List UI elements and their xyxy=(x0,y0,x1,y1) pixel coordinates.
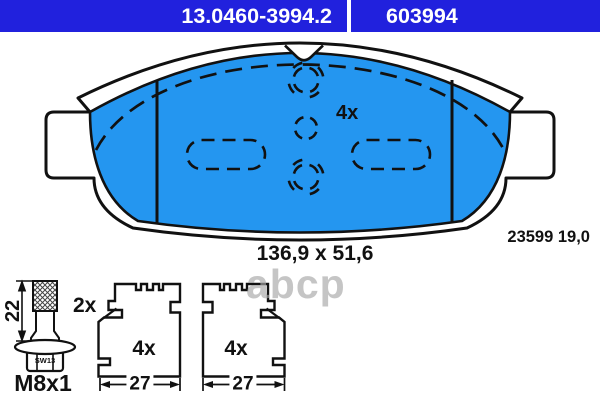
clip-right-dim-arrow-right xyxy=(275,381,285,388)
clip-left-dim-arrow-right xyxy=(170,381,180,388)
clip-left-width-label: 27 xyxy=(126,375,153,394)
pad-reference-label: 23599 19,0 xyxy=(507,229,590,246)
pad-qty-label: 4x xyxy=(336,103,358,123)
bolt-thread-section xyxy=(33,281,57,311)
bolt-thread-label: M8x1 xyxy=(14,372,72,395)
clip-left-qty-label: 4x xyxy=(132,338,155,359)
clip-left-dim-arrow-left xyxy=(100,381,110,388)
clip-right-qty-label: 4x xyxy=(224,338,247,359)
bolt-wrench-size-label: SW13 xyxy=(35,357,55,365)
clip-right-dim-arrow-left xyxy=(203,381,213,388)
bolt-flange xyxy=(15,340,75,354)
bolt-shank xyxy=(31,311,59,341)
bolt-dim-arrow-up xyxy=(19,281,26,291)
watermark-text: abcp xyxy=(246,264,346,305)
clip-right-width-label: 27 xyxy=(229,375,256,394)
bolt-qty-label: 2x xyxy=(73,295,96,316)
bolt-dim-arrow-down xyxy=(19,331,26,341)
clip-left-outline xyxy=(99,284,181,377)
technical-drawing xyxy=(0,0,600,400)
brake-pad-drawing xyxy=(46,43,554,240)
catalog-image: 13.0460-3994.2 603994 xyxy=(0,0,600,400)
bolt-length-label: 22 xyxy=(3,300,23,322)
